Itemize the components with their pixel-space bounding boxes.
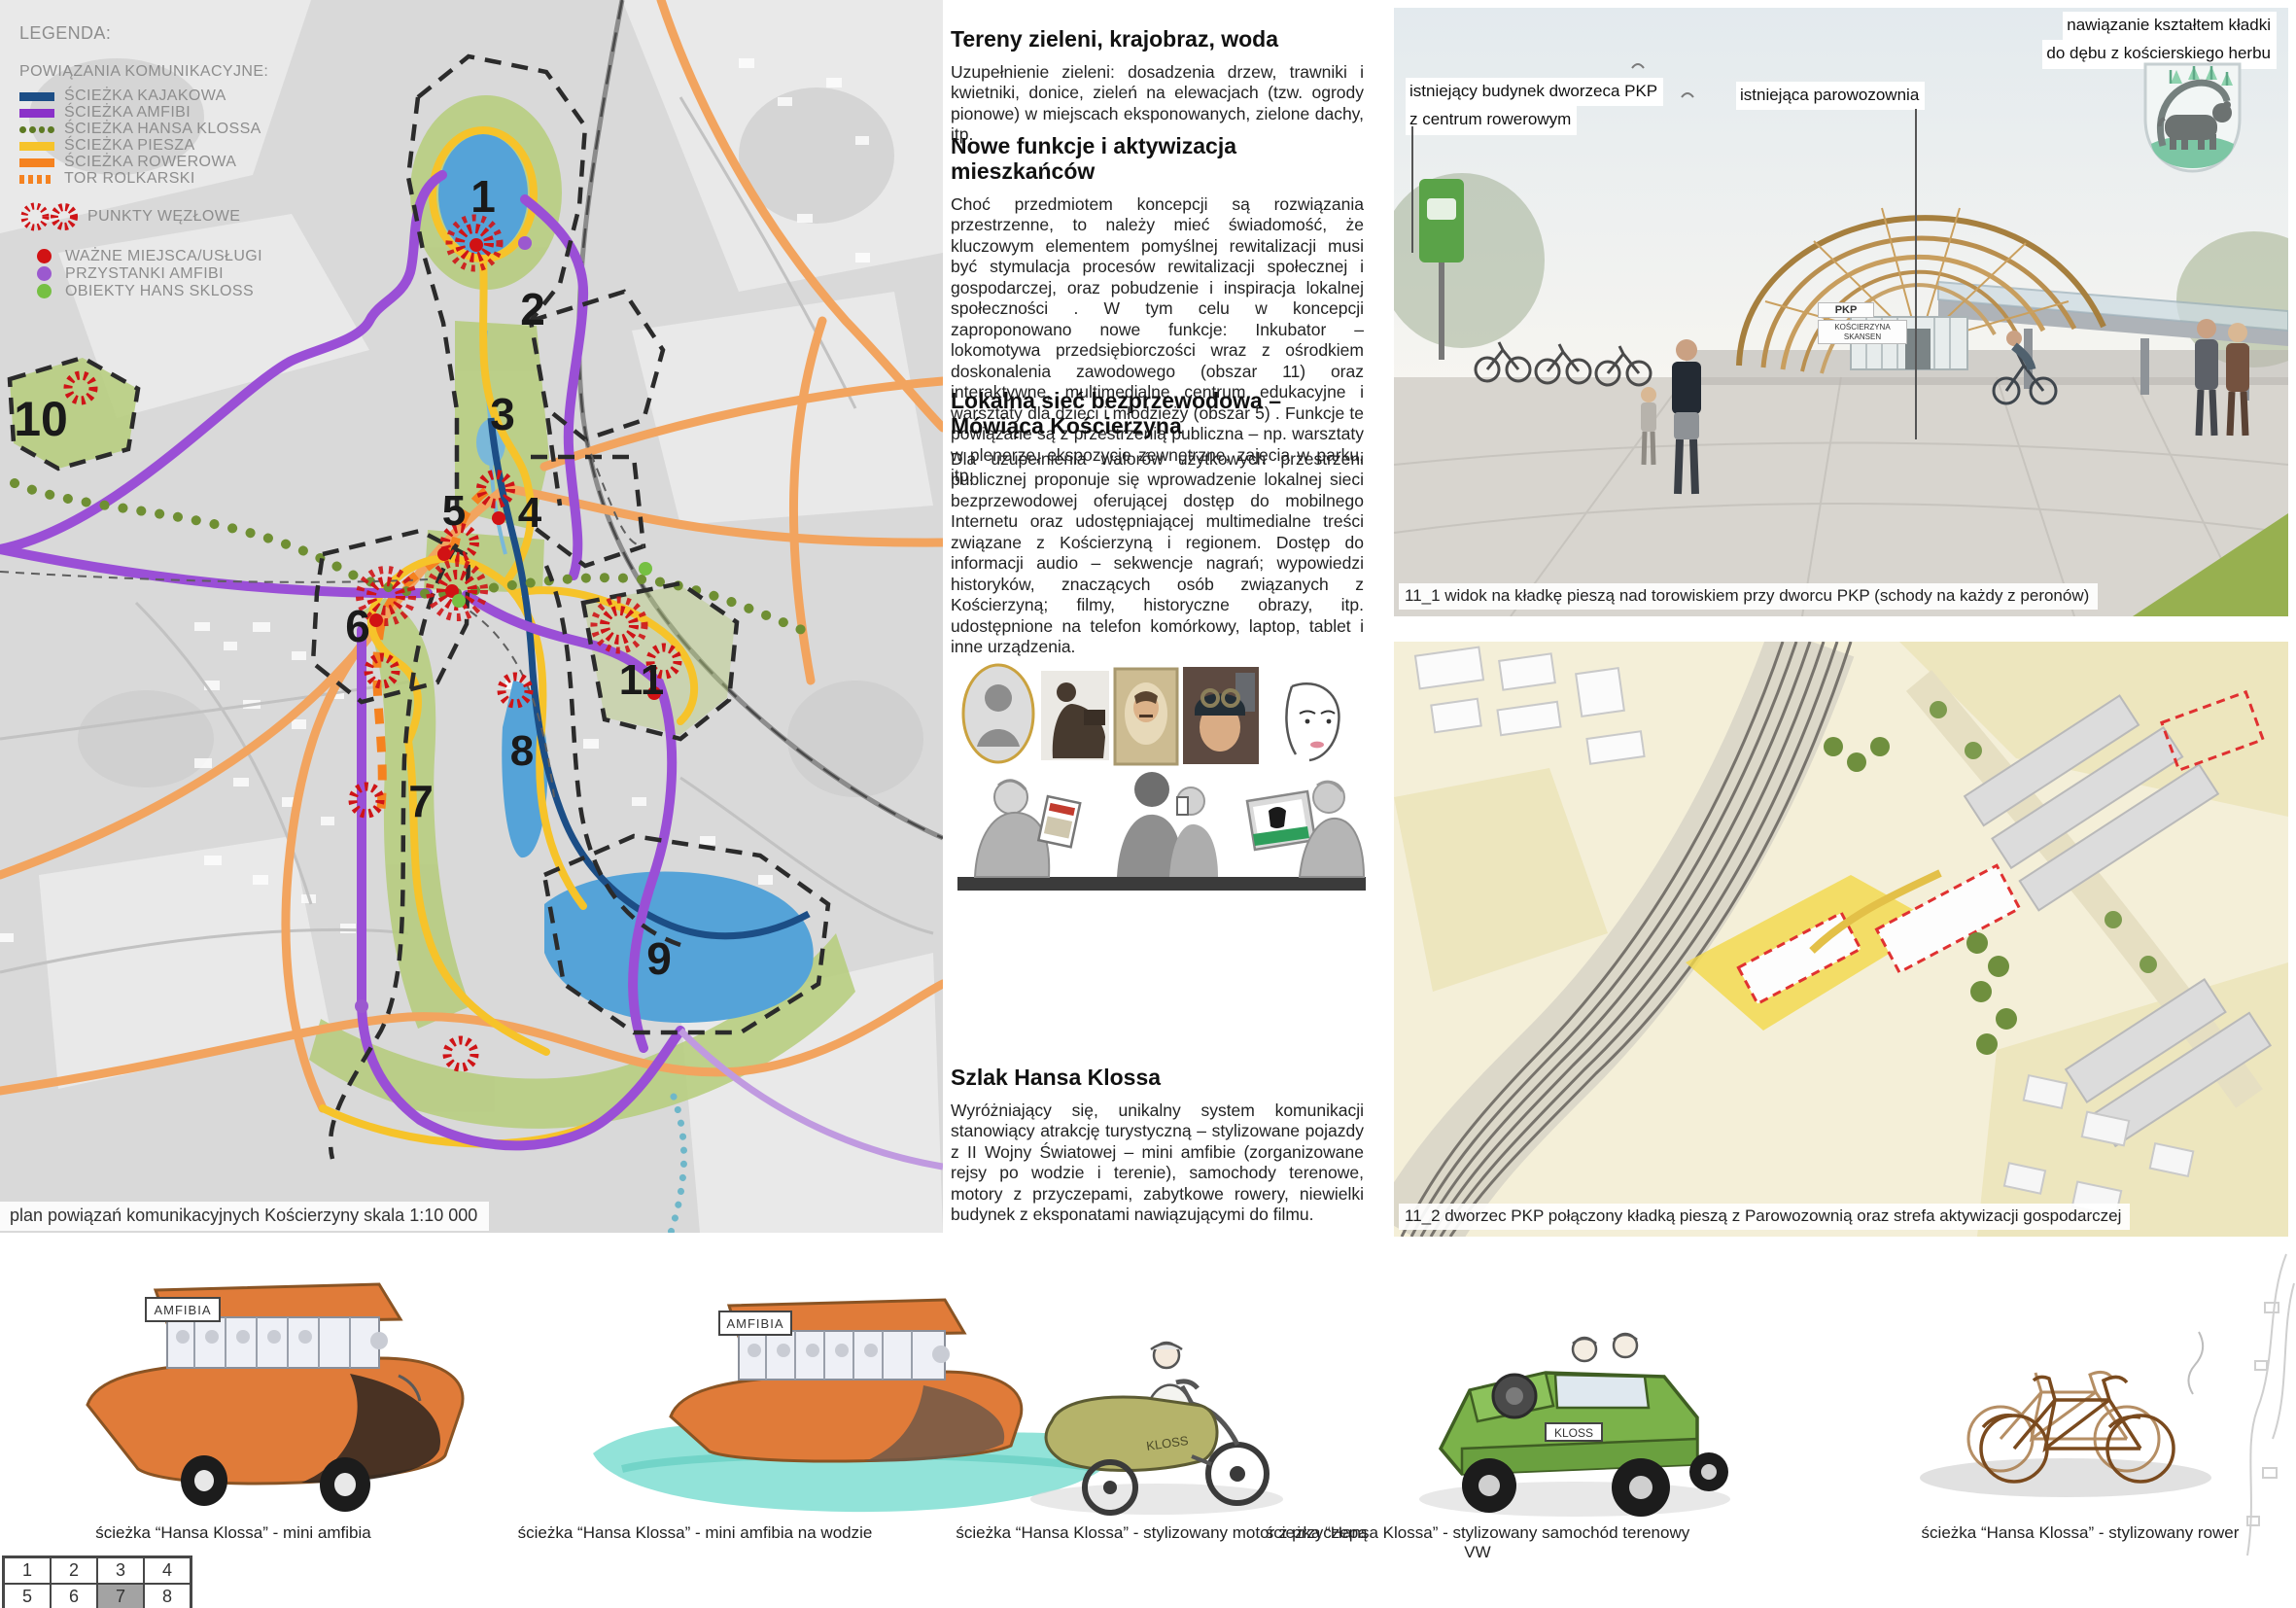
portrait-engraving	[963, 665, 1033, 762]
legend-item-places: WAŻNE MIEJSCA/USŁUGI	[19, 249, 350, 263]
vw-offroad-illustration: KLOSS	[1400, 1281, 1750, 1531]
motorcycle-sidecar-illustration: KLOSS	[1001, 1293, 1303, 1531]
legend-item-stops: PRZYSTANKI AMFIBI	[19, 266, 350, 281]
board-index-cell: 1	[4, 1557, 51, 1584]
render-bottom-caption: 11_2 dworzec PKP połączony kładką pieszą…	[1399, 1204, 2130, 1230]
board-index-cell: 5	[4, 1584, 51, 1608]
article-title: Szlak Hansa Klossa	[951, 1066, 1364, 1091]
amfibia-sign-text: AMFIBIA	[726, 1316, 783, 1331]
sign-koscierzyna-skansen: KOŚCIERZYNA SKANSEN	[1818, 320, 1907, 344]
margin-sketch	[2209, 1244, 2296, 1565]
walking-route-swatch	[19, 142, 54, 151]
legend-label: WAŻNE MIEJSCA/USŁUGI	[65, 248, 262, 265]
annotation-station: istniejący budynek dworzeca PKP z centru…	[1406, 78, 1663, 135]
collage-graphic	[957, 653, 1366, 898]
area-label-10: 10	[14, 392, 68, 446]
vw-graphic: KLOSS	[1400, 1281, 1750, 1526]
vehicle-caption-vw: ścieżka “Hansa Klossa” - stylizowany sam…	[1254, 1523, 1701, 1562]
board-index-cell-active: 7	[97, 1584, 144, 1608]
article-body: Wyróżniający się, unikalny system komuni…	[951, 1101, 1364, 1226]
legend-item-amfibi: ŚCIEŻKA AMFIBI	[19, 105, 350, 121]
legend-title: LEGENDA:	[19, 23, 350, 44]
sign-pkp: PKP	[1818, 302, 1874, 318]
area-label-4: 4	[518, 489, 542, 537]
annotation-line: istniejąca parowozownia	[1736, 82, 1925, 110]
kloss-plate-text: KLOSS	[1554, 1426, 1593, 1440]
board-index-cell: 8	[144, 1584, 191, 1608]
legend-label: ŚCIEŻKA AMFIBI	[64, 104, 191, 122]
legend-item-nodes: PUNKTY WĘZŁOWE	[19, 200, 350, 233]
legend-item-piesza: ŚCIEŻKA PIESZA	[19, 138, 350, 154]
area-label-3: 3	[490, 389, 515, 439]
legend-label: ŚCIEŻKA PIESZA	[64, 137, 195, 155]
bicycle-graphic	[1905, 1303, 2226, 1512]
portrait-kloss-photo	[1183, 667, 1259, 764]
important-place-icon	[37, 249, 52, 263]
vehicle-caption-amfibia: ścieżka “Hansa Klossa” - mini amfibia	[29, 1523, 437, 1543]
amphibia-route-swatch	[19, 109, 54, 118]
portrait-statue	[1041, 671, 1109, 760]
sketch-person-tablet	[975, 781, 1080, 877]
hansa-route-swatch	[19, 125, 54, 134]
legend-label: ŚCIEŻKA KAJAKOWA	[64, 87, 226, 105]
legend-label: OBIEKTY HANS SKLOSS	[65, 283, 254, 300]
board-index-cell: 4	[144, 1557, 191, 1584]
koscierzyna-coat-of-arms	[2138, 58, 2247, 177]
table-edge	[957, 877, 1366, 891]
board-index-grid: 1 2 3 4 5 6 7 8	[2, 1556, 192, 1608]
bicycle-illustration	[1905, 1303, 2226, 1517]
area-label-9: 9	[646, 933, 672, 984]
legend-item-rolkarski: TOR ROLKARSKI	[19, 171, 350, 187]
legend-label: ŚCIEŻKA ROWEROWA	[64, 154, 236, 171]
article-greenery: Tereny zieleni, krajobraz, woda Uzupełni…	[951, 27, 1364, 146]
portrait-painting	[1115, 669, 1177, 764]
map-caption: plan powiązań komunikacyjnych Kościerzyn…	[0, 1202, 489, 1231]
bike-route-swatch	[19, 158, 54, 167]
render-aerial-view: 11_2 dworzec PKP połączony kładką pieszą…	[1394, 642, 2288, 1237]
motorcycle-graphic: KLOSS	[1001, 1293, 1303, 1526]
article-title: Tereny zieleni, krajobraz, woda	[951, 27, 1364, 52]
amphibia-illustration: AMFIBIA	[58, 1259, 496, 1528]
legend-label: TOR ROLKARSKI	[64, 170, 195, 188]
illustration-collage	[957, 653, 1366, 898]
area-label-7: 7	[408, 776, 434, 826]
board-index-cell: 6	[51, 1584, 97, 1608]
render-bridge-view: istniejący budynek dworzeca PKP z centru…	[1394, 8, 2288, 616]
legend-label: PUNKTY WĘZŁOWE	[87, 208, 240, 226]
render-top-caption: 11_1 widok na kładkę pieszą nad torowisk…	[1399, 583, 2098, 610]
article-title: Lokalna sieć bezprzewodowa – Mówiąca Koś…	[951, 389, 1364, 439]
article-title: Nowe funkcje i aktywizacja mieszkańców	[951, 134, 1364, 185]
legend-item-objects: OBIEKTY HANS SKLOSS	[19, 284, 350, 298]
legend-item-kajakowa: ŚCIEŻKA KAJAKOWA	[19, 88, 350, 104]
article-szlak: Szlak Hansa Klossa Wyróżniający się, uni…	[951, 1066, 1364, 1226]
amfibia-sign-text: AMFIBIA	[154, 1303, 211, 1317]
map-legend: LEGENDA: POWIĄZANIA KOMUNIKACYJNE: ŚCIEŻ…	[19, 23, 350, 301]
area-label-5: 5	[442, 487, 466, 535]
annotation-roundhouse: istniejąca parowozownia	[1736, 82, 1925, 110]
legend-label: ŚCIEŻKA HANSA KLOSSA	[64, 121, 261, 138]
area-label-11: 11	[619, 656, 665, 704]
area-label-2: 2	[520, 284, 545, 334]
annotation-line: istniejący budynek dworzeca PKP	[1406, 78, 1663, 106]
legend-item-hansa: ŚCIEŻKA HANSA KLOSSA	[19, 122, 350, 137]
legend-connections-heading: POWIĄZANIA KOMUNIKACYJNE:	[19, 63, 350, 81]
map-panel: 1 2 3 4 5 6 7 8 9 10 11 LEGENDA: POWIĄZA…	[0, 0, 943, 1233]
skating-route-swatch	[19, 175, 54, 184]
annotation-line: z centrum rowerowym	[1406, 106, 1577, 134]
sketch-people-laptop	[1247, 782, 1364, 877]
leader-line-roundhouse	[1915, 109, 1917, 439]
vehicle-caption-amfibia-water: ścieżka “Hansa Klossa” - mini amfibia na…	[486, 1523, 904, 1543]
direction-signs: PKP KOŚCIERZYNA SKANSEN	[1818, 302, 1911, 346]
portrait-woman-sketch	[1267, 671, 1350, 766]
kloss-object-icon	[37, 284, 52, 298]
board-index-cell: 3	[97, 1557, 144, 1584]
article-body: Dla uzupełnienia walorów użytkowych prze…	[951, 449, 1364, 658]
kayak-route-swatch	[19, 92, 54, 101]
legend-item-rowerowa: ŚCIEŻKA ROWEROWA	[19, 155, 350, 170]
area-label-1: 1	[470, 171, 496, 222]
amphibia-stop-icon	[37, 266, 52, 281]
node-burst-icon	[19, 200, 80, 233]
area-label-8: 8	[510, 727, 534, 775]
sketch-couple-phone	[1117, 772, 1218, 877]
board-index-cell: 2	[51, 1557, 97, 1584]
leader-line-station	[1411, 126, 1413, 253]
presentation-board: 1 2 3 4 5 6 7 8 9 10 11 LEGENDA: POWIĄZA…	[0, 0, 2296, 1608]
article-wireless: Lokalna sieć bezprzewodowa – Mówiąca Koś…	[951, 389, 1364, 658]
aerial-render-graphic	[1394, 642, 2288, 1237]
annotation-line: nawiązanie kształtem kładki	[2063, 12, 2277, 40]
legend-label: PRZYSTANKI AMFIBI	[65, 265, 224, 283]
amphibia-graphic: AMFIBIA	[58, 1259, 496, 1523]
area-label-6: 6	[345, 601, 370, 651]
